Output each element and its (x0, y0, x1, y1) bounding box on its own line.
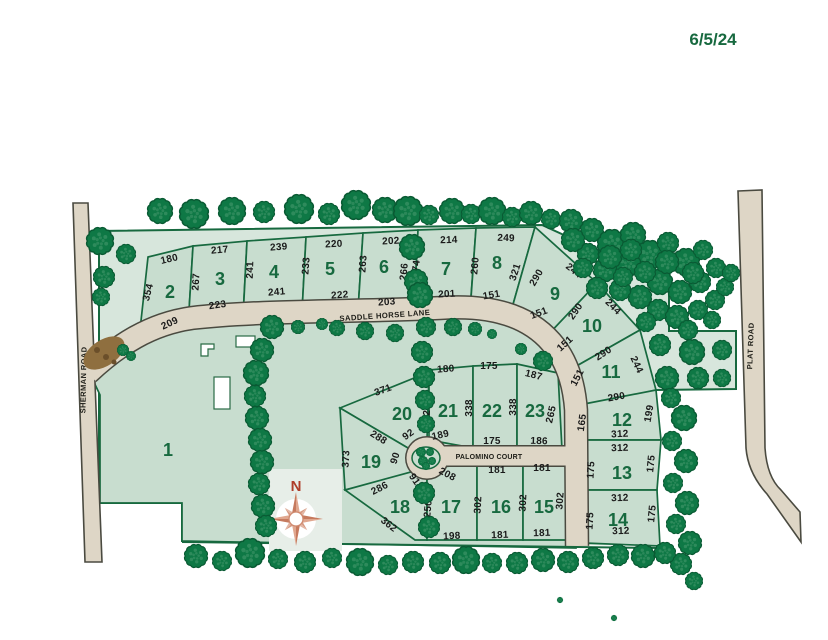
svg-text:6/5/24: 6/5/24 (689, 30, 737, 49)
svg-text:175: 175 (646, 504, 659, 523)
svg-text:175: 175 (585, 512, 597, 530)
svg-text:217: 217 (211, 244, 230, 257)
svg-text:175: 175 (645, 454, 658, 473)
svg-text:181: 181 (488, 465, 506, 476)
svg-text:19: 19 (361, 452, 381, 472)
svg-text:338: 338 (464, 399, 475, 417)
svg-text:201: 201 (438, 289, 456, 301)
svg-text:233: 233 (300, 257, 312, 275)
svg-text:3: 3 (215, 269, 225, 289)
svg-text:1: 1 (163, 440, 173, 460)
svg-text:5: 5 (325, 259, 335, 279)
svg-text:203: 203 (378, 296, 396, 308)
svg-text:181: 181 (533, 528, 551, 540)
svg-text:312: 312 (611, 493, 629, 505)
svg-text:202: 202 (382, 236, 400, 248)
svg-text:12: 12 (612, 410, 632, 430)
svg-text:312: 312 (611, 429, 629, 441)
svg-text:239: 239 (270, 241, 288, 253)
svg-text:175: 175 (483, 436, 501, 447)
svg-text:11: 11 (601, 362, 620, 382)
svg-text:10: 10 (582, 316, 602, 336)
svg-text:198: 198 (443, 531, 461, 543)
svg-text:338: 338 (508, 398, 519, 416)
svg-text:15: 15 (534, 497, 554, 517)
svg-text:22: 22 (482, 401, 502, 421)
svg-text:241: 241 (245, 261, 257, 279)
svg-text:260: 260 (469, 256, 482, 275)
svg-text:23: 23 (525, 401, 545, 421)
svg-text:181: 181 (491, 530, 509, 542)
svg-text:373: 373 (341, 450, 353, 468)
svg-text:312: 312 (611, 443, 629, 455)
svg-text:220: 220 (325, 239, 343, 251)
svg-text:17: 17 (441, 497, 461, 517)
svg-text:18: 18 (390, 497, 410, 517)
svg-text:181: 181 (533, 463, 551, 474)
svg-text:7: 7 (441, 259, 451, 279)
svg-text:222: 222 (331, 289, 349, 301)
svg-text:267: 267 (191, 273, 203, 291)
svg-text:175: 175 (586, 461, 598, 479)
svg-text:214: 214 (440, 235, 458, 247)
svg-text:PALOMINO COURT: PALOMINO COURT (456, 454, 523, 461)
svg-text:16: 16 (491, 497, 511, 517)
svg-text:2: 2 (165, 282, 175, 302)
svg-text:175: 175 (480, 361, 498, 372)
svg-text:N: N (291, 478, 302, 495)
svg-text:PLAT ROAD: PLAT ROAD (745, 322, 756, 369)
svg-text:302: 302 (473, 496, 485, 514)
svg-text:21: 21 (438, 401, 458, 421)
svg-text:20: 20 (392, 404, 412, 424)
svg-text:302: 302 (554, 492, 566, 510)
svg-text:312: 312 (612, 526, 630, 538)
svg-text:13: 13 (612, 463, 632, 483)
svg-text:6: 6 (379, 257, 389, 277)
svg-text:302: 302 (518, 494, 530, 512)
svg-text:4: 4 (269, 262, 279, 282)
svg-text:8: 8 (492, 253, 502, 273)
svg-text:263: 263 (357, 255, 369, 273)
svg-text:249: 249 (497, 233, 515, 245)
svg-text:9: 9 (550, 284, 560, 304)
svg-text:186: 186 (530, 436, 548, 448)
svg-text:241: 241 (268, 286, 287, 299)
svg-text:180: 180 (437, 363, 455, 375)
